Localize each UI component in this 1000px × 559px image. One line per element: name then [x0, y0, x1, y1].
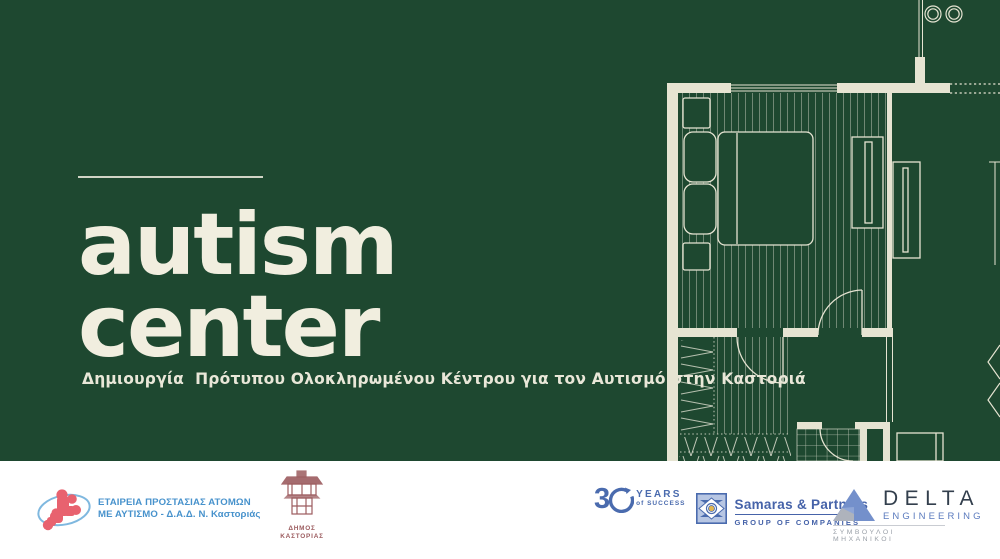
- double-bed: [718, 132, 813, 245]
- municipality-line2: ΚΑΣΤΟΡΙΑΣ: [280, 533, 324, 541]
- of-success-label: of SUCCESS: [636, 500, 685, 508]
- thirty-years-text: YEARS of SUCCESS: [636, 490, 685, 508]
- window-symbol: [728, 85, 840, 91]
- logo-delta-engineering: DELTA ENGINEERING ΣΥΜΒΟΥΛΟΙ ΜΗΧΑΝΙΚΟΙ: [833, 488, 991, 543]
- autism-society-line1: ΕΤΑΙΡΕΙΑ ΠΡΟΣΤΑΣΙΑΣ ΑΤΟΜΩΝ: [98, 497, 260, 510]
- autism-society-name: ΕΤΑΙΡΕΙΑ ΠΡΟΣΤΑΣΙΑΣ ΑΤΟΜΩΝ ΜΕ ΑΥΤΙΣΜΟ - …: [98, 497, 260, 522]
- title-divider-line: [78, 176, 263, 178]
- thirty-arc-icon: [608, 487, 634, 513]
- delta-name: DELTA: [883, 488, 984, 510]
- autism-society-line2: ΜΕ ΑΥΤΙΣΜΟ - Δ.Α.Δ. Ν. Καστοριάς: [98, 509, 260, 522]
- delta-row: DELTA ENGINEERING: [833, 488, 991, 522]
- samaras-eye-icon: [696, 493, 727, 524]
- thirty-years-badge: 3 YEARS of SUCCESS: [594, 487, 686, 513]
- puzzle-figure-icon: [34, 485, 92, 533]
- footer-bar: ΕΤΑΙΡΕΙΑ ΠΡΟΣΤΑΣΙΑΣ ΑΤΟΜΩΝ ΜΕ ΑΥΤΙΣΜΟ - …: [0, 461, 1000, 559]
- delta-wordmark: DELTA ENGINEERING: [883, 488, 984, 522]
- delta-subtitle: ΣΥΜΒΟΥΛΟΙ ΜΗΧΑΝΙΚΟΙ: [833, 525, 945, 543]
- delta-triangle-icon: [833, 488, 877, 522]
- bed-pillow: [684, 132, 716, 182]
- dashed-wall: [950, 84, 1000, 93]
- floor-plan-drawing: [650, 0, 1000, 461]
- logo-samaras-partners: 3 YEARS of SUCCESS Samaras & Par: [594, 487, 868, 527]
- break-line-symbol: [988, 345, 1000, 417]
- nightstand: [683, 98, 710, 128]
- years-label: YEARS: [636, 490, 685, 500]
- bed-pillow: [684, 184, 716, 234]
- logo-autism-society: ΕΤΑΙΡΕΙΑ ΠΡΟΣΤΑΣΙΑΣ ΑΤΟΜΩΝ ΜΕ ΑΥΤΙΣΜΟ - …: [34, 485, 260, 533]
- delta-engineering-label: ENGINEERING: [883, 511, 984, 522]
- circle-symbols: [925, 6, 962, 22]
- municipality-line1: ΔΗΜΟΣ: [280, 525, 324, 533]
- mansion-icon: [277, 469, 327, 523]
- page-title: autismcenter: [78, 204, 397, 368]
- nightstand: [683, 243, 710, 270]
- logo-municipality-kastoria: ΔΗΜΟΣ ΚΑΣΤΟΡΙΑΣ: [268, 469, 336, 541]
- title-line-2: center: [78, 277, 378, 377]
- slide: autismcenter Δημιουργία Πρότυπου Ολοκληρ…: [0, 0, 1000, 559]
- municipality-name: ΔΗΜΟΣ ΚΑΣΤΟΡΙΑΣ: [280, 525, 324, 541]
